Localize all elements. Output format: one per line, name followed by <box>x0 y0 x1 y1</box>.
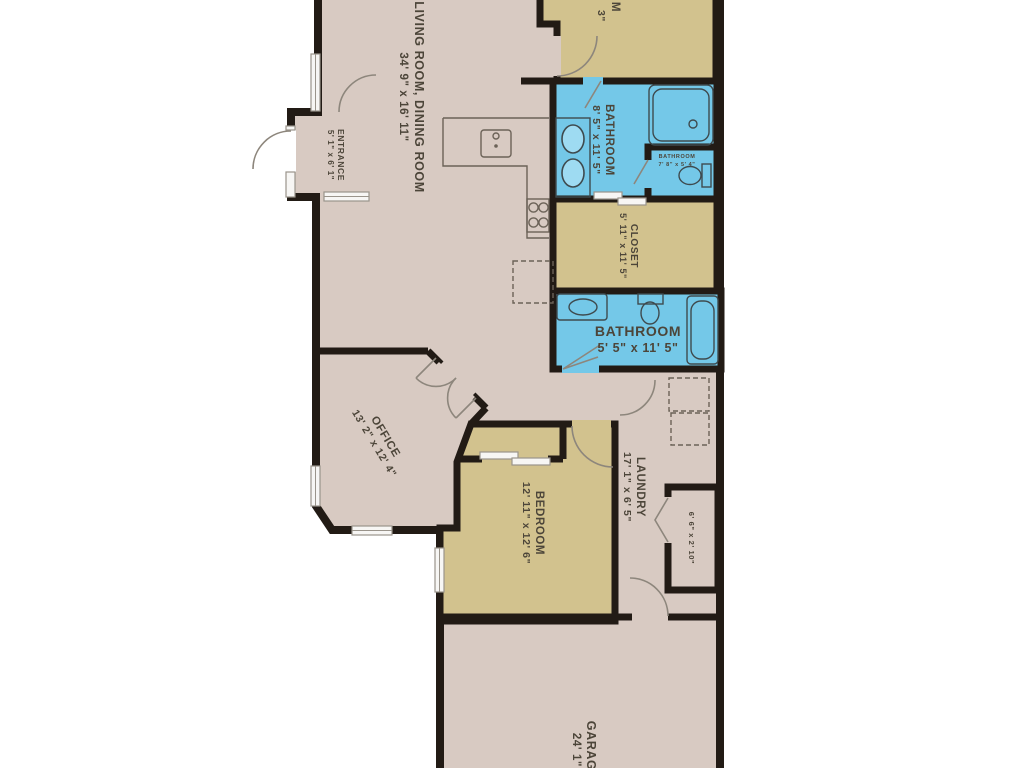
front-door-swing <box>253 131 291 169</box>
room-dims: 7' 8" x 5' 4" <box>658 162 695 168</box>
room-dims: 12' 11" x 12' 6" <box>520 482 532 564</box>
label-laundry: LAUNDRY 17' 1" x 6' 5" <box>621 452 646 522</box>
floor-plan-canvas: LIVING ROOM, DINING ROOM 34' 9" x 16' 11… <box>0 0 1024 768</box>
room-label: BATHROOM <box>595 323 681 339</box>
window-bedroom-left <box>435 548 444 592</box>
room-label: ENTRANCE <box>336 129 346 181</box>
room-label: BEDROOM <box>533 491 545 555</box>
label-bedroom: BEDROOM 12' 11" x 12' 6" <box>520 482 545 564</box>
room-label: GARAGE <box>584 721 598 768</box>
room-dims: 5' 5" x 11' 5" <box>597 341 678 355</box>
label-bathroom-main: BATHROOM 8' 5" x 11' 5" <box>590 104 615 176</box>
room-label: BATHROOM <box>659 154 696 160</box>
label-laundry-closet: 6' 6" x 2' 10" <box>687 512 696 564</box>
room-label: CLOSET <box>628 224 639 268</box>
room-label: BATHROOM <box>603 104 615 176</box>
room-dims: 17' 1" x 6' 5" <box>621 452 633 522</box>
window-office-bottom <box>352 526 392 535</box>
floor-plan: LIVING ROOM, DINING ROOM 34' 9" x 16' 11… <box>0 0 1024 768</box>
sink-icon <box>562 159 584 187</box>
svg-text:3": 3" <box>595 10 607 22</box>
window-entrance-bottom <box>324 192 369 201</box>
room-dims: 34' 9" x 16' 11" <box>397 52 409 141</box>
room-bedroom-top <box>540 0 716 81</box>
sink-icon <box>562 125 584 153</box>
room-label: LAUNDRY <box>634 457 646 517</box>
room-dims: 24' 1" <box>570 733 582 767</box>
room-dims: 8' 5" x 11' 5" <box>590 105 602 174</box>
svg-text:M: M <box>609 2 621 12</box>
window-office-left <box>311 466 320 506</box>
window-living-left <box>311 54 320 111</box>
room-dims: 6' 6" x 2' 10" <box>687 512 696 564</box>
room-dims: 5' 11" x 11' 5" <box>618 213 628 279</box>
room-dims: 5' 1" x 6' 1" <box>326 130 335 180</box>
room-label: LIVING ROOM, DINING ROOM <box>412 1 426 192</box>
